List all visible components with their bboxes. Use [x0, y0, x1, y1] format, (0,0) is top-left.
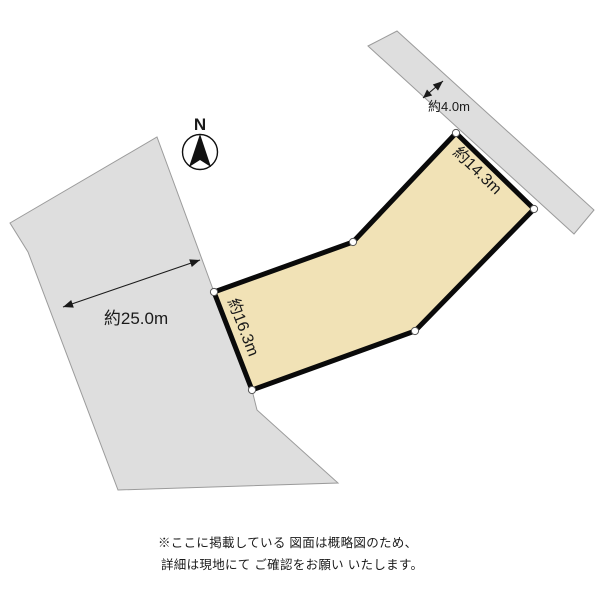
vertex-marker: [452, 129, 459, 136]
vertex-marker: [248, 386, 255, 393]
vertex-marker: [349, 238, 356, 245]
dimension-label-4m: 約4.0m: [428, 99, 470, 114]
site-plan-canvas: 約25.0m 約4.0m 約14.3m 約16.3m N ※ここに掲載している …: [0, 0, 600, 600]
north-label: N: [194, 115, 206, 134]
vertex-marker: [411, 327, 418, 334]
dimension-label-25m: 約25.0m: [104, 309, 168, 328]
vertex-marker: [530, 205, 537, 212]
north-compass: N: [183, 115, 218, 170]
site-plan-page: 約25.0m 約4.0m 約14.3m 約16.3m N ※ここに掲載している …: [0, 0, 600, 600]
disclaimer-line-1: ※ここに掲載している 図面は概略図のため、: [158, 535, 417, 550]
disclaimer-line-2: 詳細は現地にて ご確認をお願い いたします。: [161, 557, 423, 572]
vertex-marker: [210, 288, 217, 295]
